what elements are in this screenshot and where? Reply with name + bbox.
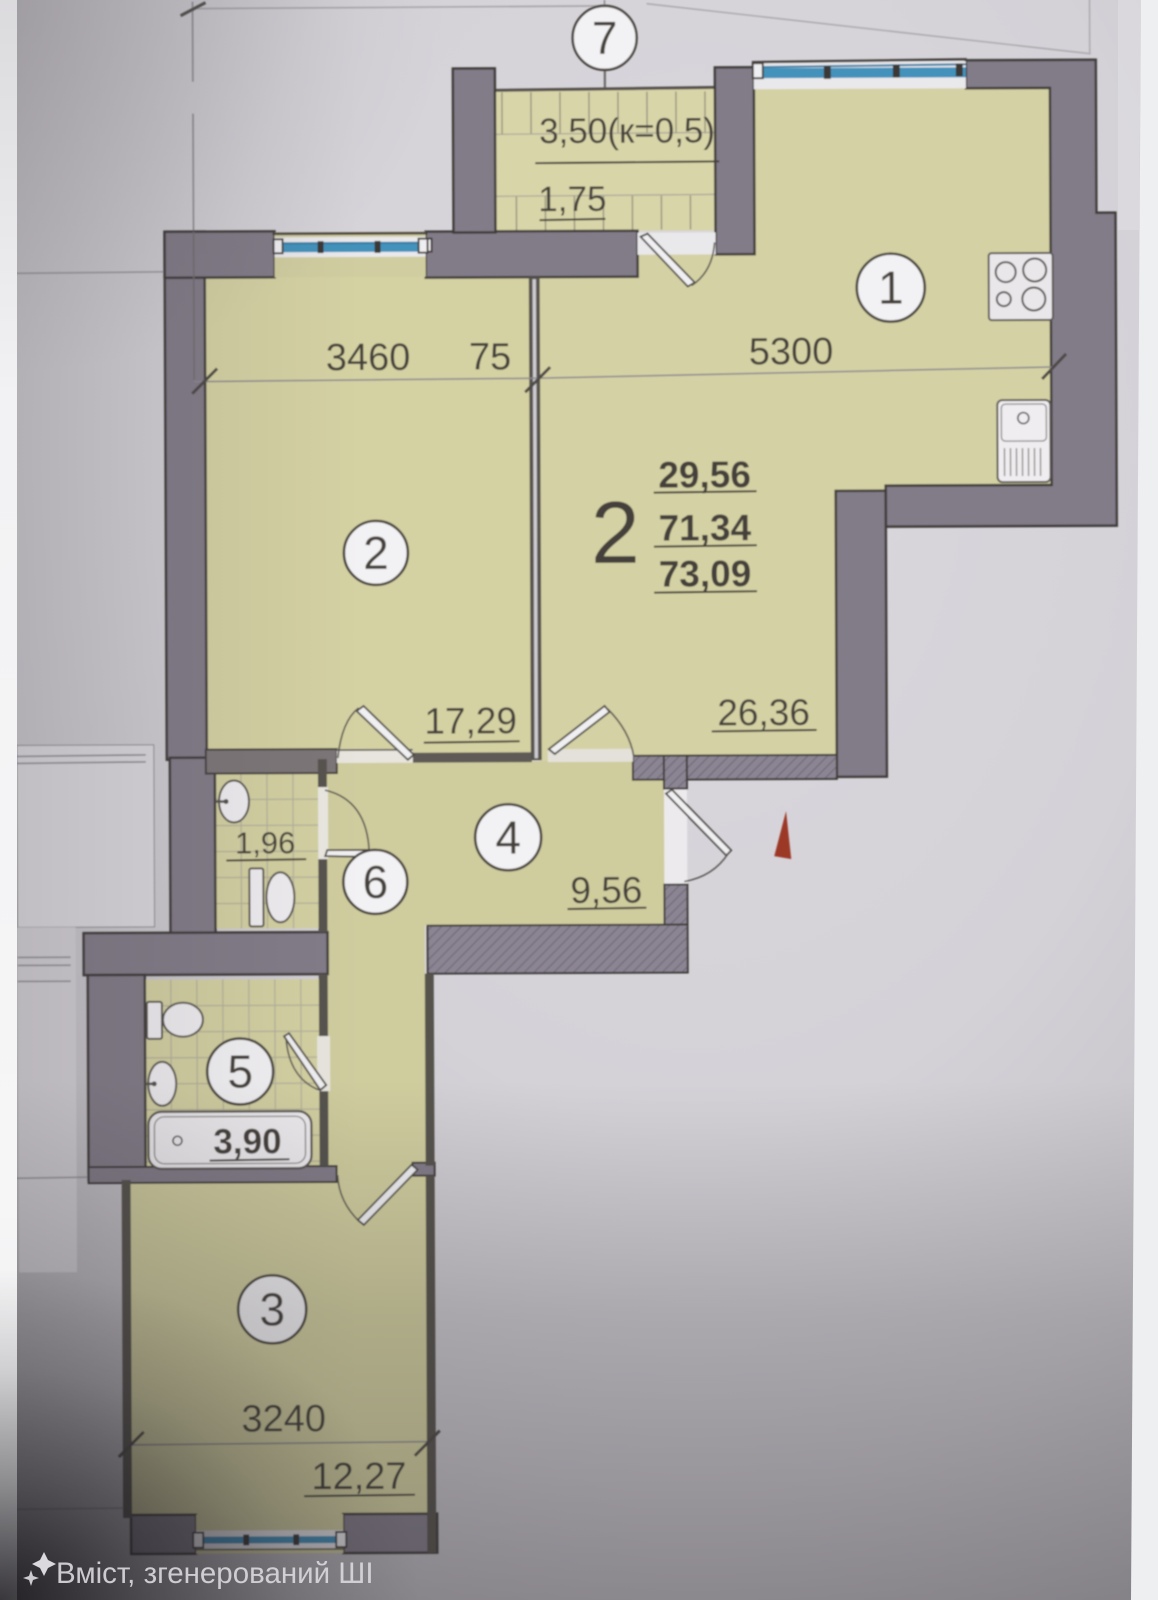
svg-text:9,56: 9,56 (570, 870, 642, 911)
svg-text:26,36: 26,36 (717, 692, 810, 733)
svg-text:17,29: 17,29 (424, 700, 517, 741)
svg-text:5300: 5300 (749, 331, 834, 373)
svg-text:2: 2 (591, 483, 640, 582)
svg-text:Вміст, згенерований ШІ: Вміст, згенерований ШІ (56, 1557, 374, 1590)
svg-text:71,34: 71,34 (658, 507, 751, 548)
svg-text:7: 7 (592, 12, 618, 64)
svg-text:3,50(к=0,5): 3,50(к=0,5) (539, 111, 715, 151)
svg-text:4: 4 (495, 811, 521, 863)
svg-text:29,56: 29,56 (658, 454, 751, 495)
svg-text:6: 6 (362, 856, 388, 908)
svg-text:73,09: 73,09 (659, 553, 752, 594)
svg-text:2: 2 (363, 527, 389, 579)
svg-text:1,75: 1,75 (538, 180, 606, 219)
svg-text:1: 1 (878, 262, 904, 314)
